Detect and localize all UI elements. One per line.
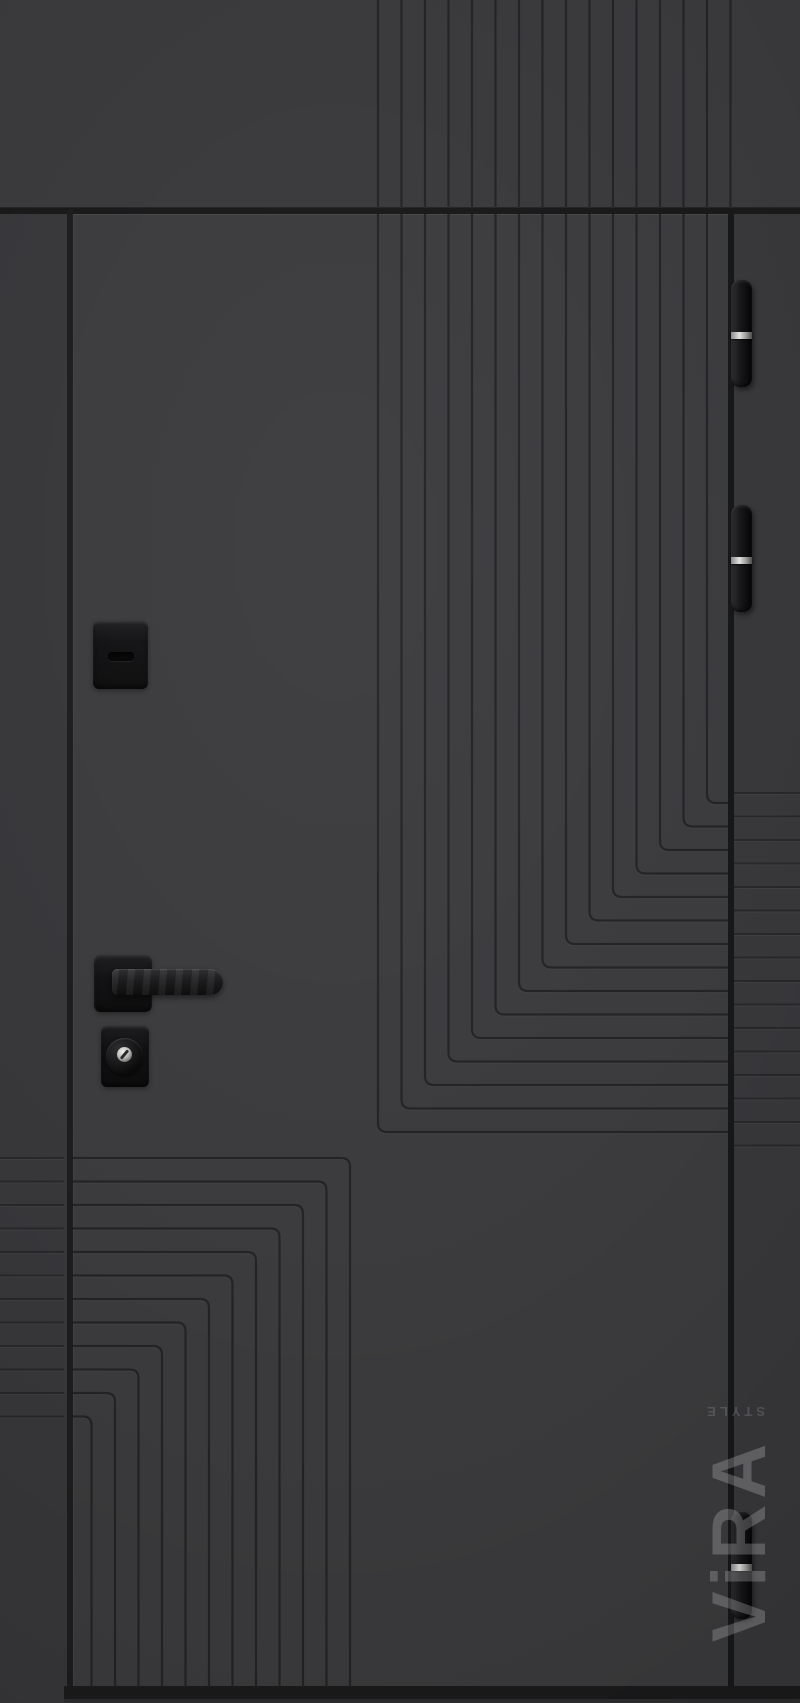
keyway-slot — [120, 1049, 129, 1059]
hinge-ring — [731, 332, 752, 339]
groove-pattern — [0, 0, 800, 1703]
cylinder-lock-escutcheon — [101, 1026, 149, 1087]
hinge-top — [731, 280, 752, 387]
cylinder-ring — [106, 1038, 143, 1075]
door-handle-lever — [112, 969, 223, 995]
hinge-middle — [731, 505, 752, 612]
door-product-photo: ViRA STYLE — [0, 0, 800, 1703]
keyhole — [117, 1047, 132, 1062]
hinge-ring — [731, 1564, 752, 1571]
hinge-ring — [731, 557, 752, 564]
night-lock-escutcheon — [93, 621, 148, 689]
hinge-bottom — [731, 1512, 752, 1619]
thumbturn-slot — [108, 652, 134, 661]
